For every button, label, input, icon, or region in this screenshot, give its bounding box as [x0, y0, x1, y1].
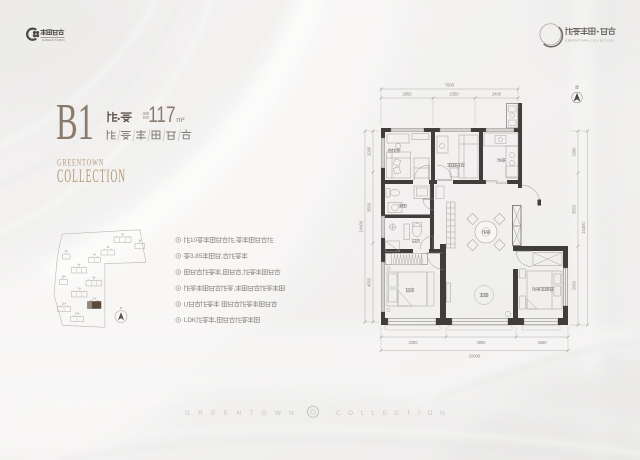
svg-text:,: , — [233, 285, 235, 292]
svg-text:10400: 10400 — [581, 222, 586, 234]
svg-text:2090: 2090 — [366, 146, 371, 156]
svg-text:,: , — [221, 253, 223, 260]
svg-text:3300: 3300 — [408, 340, 418, 345]
svg-text:2090: 2090 — [571, 147, 576, 157]
svg-text:B1: B1 — [56, 95, 94, 151]
svg-text:COLLECTION: COLLECTION — [57, 167, 126, 187]
svg-text:14400: 14400 — [358, 220, 363, 232]
svg-text:2650: 2650 — [571, 280, 576, 290]
svg-text:m²: m² — [176, 117, 185, 124]
svg-text:LDK: LDK — [184, 317, 197, 324]
svg-text:,: , — [234, 237, 236, 244]
svg-text:2850: 2850 — [402, 91, 412, 96]
svg-text:10#: 10# — [61, 274, 66, 278]
svg-text:3.85: 3.85 — [190, 253, 203, 260]
svg-text:GREENTOWN: GREENTOWN — [185, 410, 302, 417]
svg-text:117: 117 — [148, 103, 175, 128]
svg-text:,: , — [241, 269, 243, 276]
svg-text:N: N — [120, 306, 122, 310]
svg-text:2400: 2400 — [492, 91, 502, 96]
svg-text:GREENTOWN: GREENTOWN — [42, 38, 65, 42]
svg-text:3550: 3550 — [366, 202, 371, 212]
svg-text:2350: 2350 — [449, 91, 459, 96]
svg-text:2650: 2650 — [537, 340, 547, 345]
svg-text:11#: 11# — [62, 301, 67, 305]
svg-text:4050: 4050 — [366, 277, 371, 287]
svg-text:,: , — [221, 269, 223, 276]
svg-text:U: U — [184, 301, 189, 308]
svg-text:13#: 13# — [75, 311, 80, 315]
svg-text:10000: 10000 — [469, 353, 481, 358]
svg-text:3550: 3550 — [571, 204, 576, 214]
svg-text:COLLECTION: COLLECTION — [336, 410, 452, 417]
svg-text:7600: 7600 — [445, 82, 455, 87]
svg-text:,: , — [215, 317, 217, 324]
svg-text:3850: 3850 — [476, 340, 486, 345]
svg-text:12#: 12# — [92, 296, 97, 300]
svg-text:10: 10 — [190, 237, 198, 244]
svg-text:GREENTOWN COLLECTION: GREENTOWN COLLECTION — [565, 38, 614, 42]
